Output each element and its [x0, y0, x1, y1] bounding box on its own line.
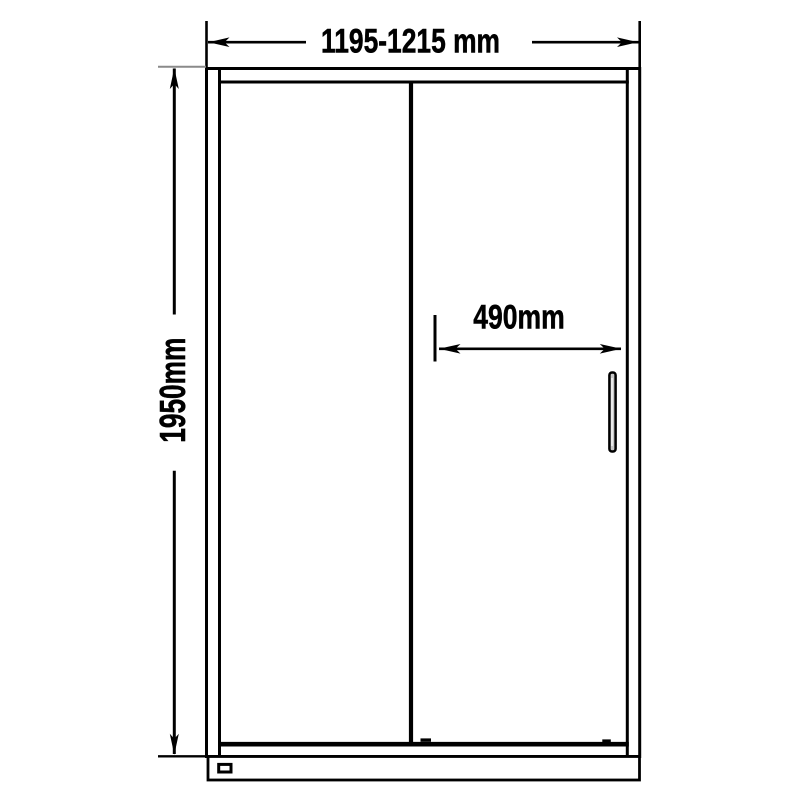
svg-text:1195-1215 mm: 1195-1215 mm [321, 21, 500, 60]
svg-text:490mm: 490mm [473, 297, 564, 336]
svg-text:1950mm: 1950mm [152, 338, 193, 443]
